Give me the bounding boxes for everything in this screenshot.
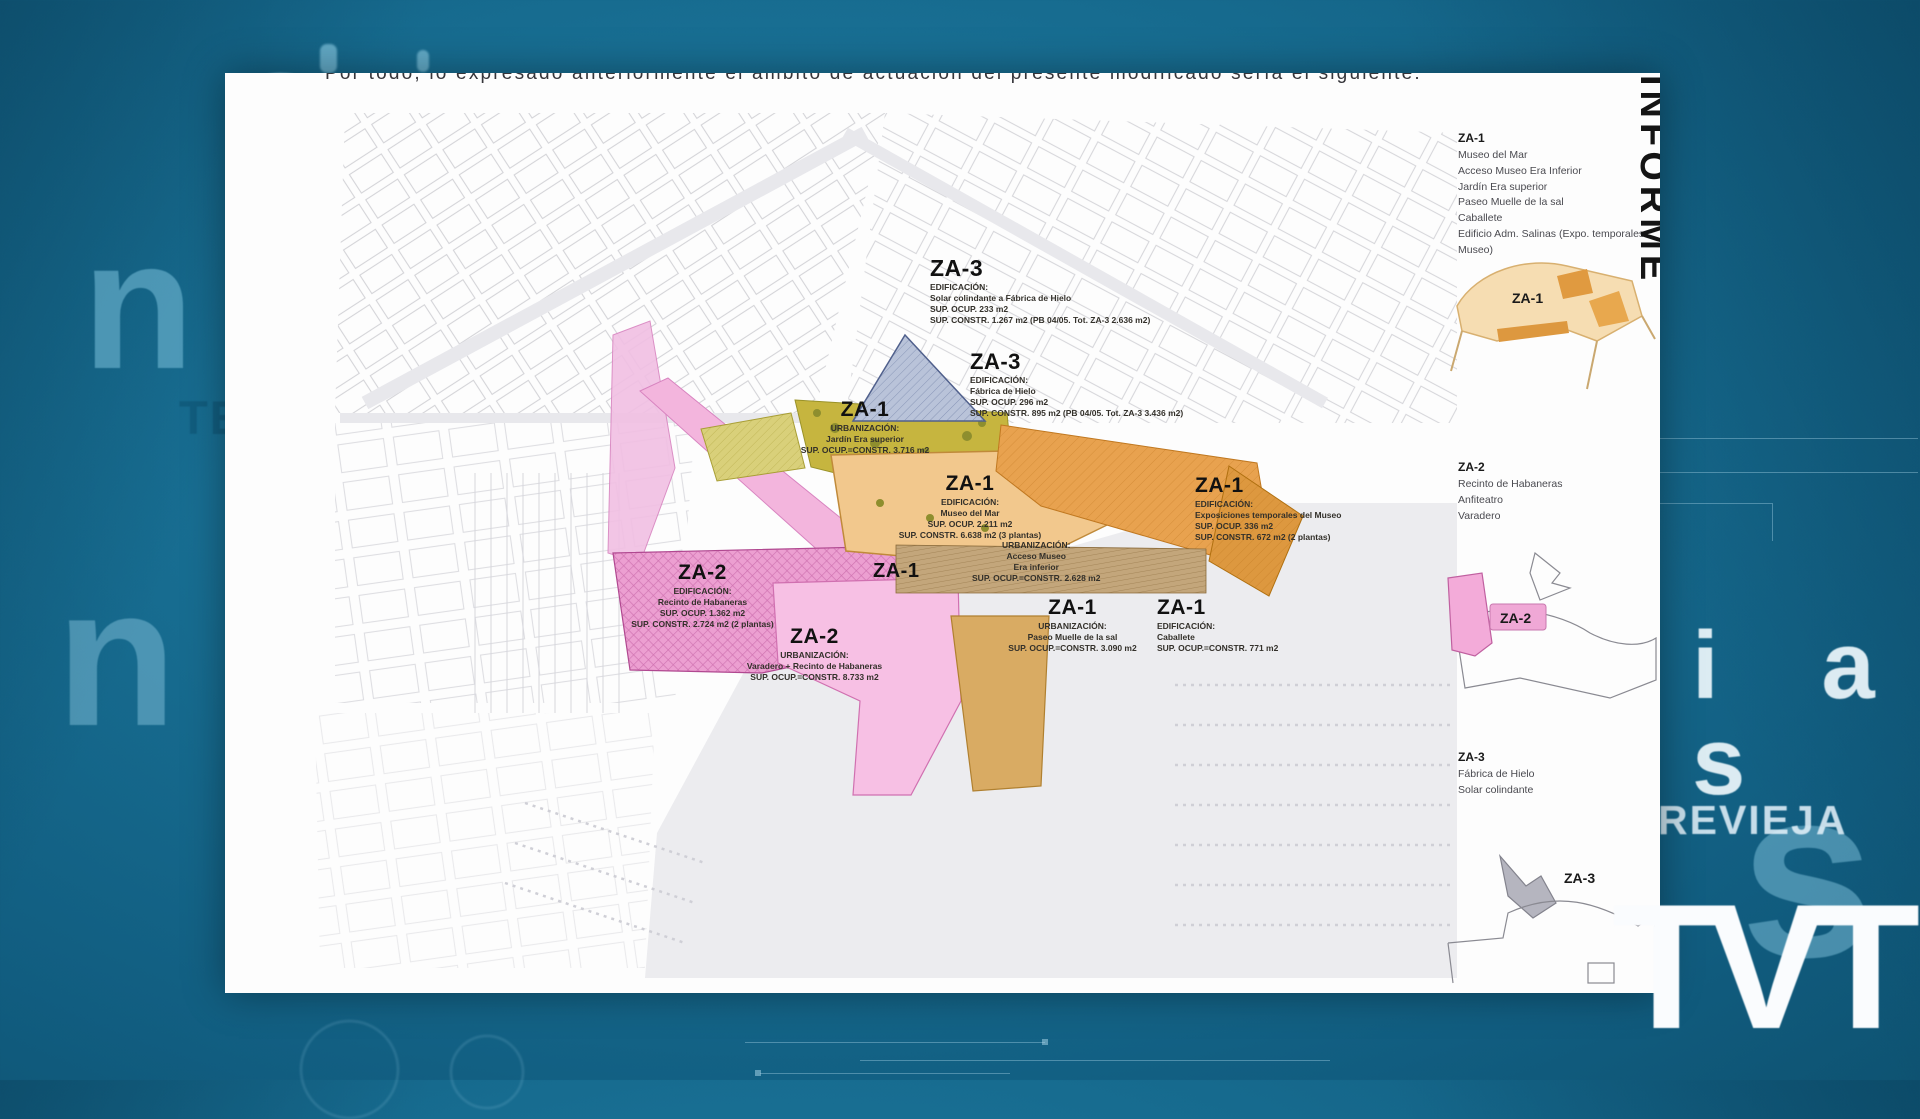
zone-block-za1-paseo: ZA-1 URBANIZACIÓN: Paseo Muelle de la sa… [970, 597, 1175, 654]
zone-title: ZA-1 [1195, 475, 1430, 497]
informe-vertical-label: INFORME [1634, 75, 1660, 395]
zone-block-za1-acceso: ZA-1 URBANIZACIÓN: Acceso Museo Era infe… [873, 540, 1143, 584]
zone-title: ZA-1 [873, 561, 919, 582]
zone-title: ZA-1 [1157, 597, 1337, 619]
clipped-letter-fragment [417, 50, 429, 72]
circuit-node [755, 1070, 761, 1076]
document-page: Por todo, lo expresado anteriormente el … [225, 73, 1660, 993]
circuit-line [1772, 503, 1773, 541]
circuit-line [760, 1073, 1010, 1074]
zone-title: ZA-3 [970, 350, 1270, 373]
zone-block-za1-expo: ZA-1 EDIFICACIÓN: Exposiciones temporale… [1195, 475, 1430, 543]
zone-block-za1-museo: ZA-1 EDIFICACIÓN: Museo del Mar SUP. OCU… [870, 473, 1070, 541]
zone-title: ZA-2 [707, 626, 922, 648]
circuit-line [860, 1060, 1330, 1061]
legend-za1-title: ZA-1 [1458, 131, 1658, 145]
zone-block-za2-recinto: ZA-2 EDIFICACIÓN: Recinto de Habaneras S… [600, 562, 805, 630]
ghost-letter-n-upper: n [82, 212, 194, 396]
za2-minimap: ZA-2 [1440, 528, 1660, 738]
za2-minimap-label: ZA-2 [1500, 610, 1531, 626]
ghost-letter-n-lower: n [56, 558, 177, 756]
circuit-node [1042, 1039, 1048, 1045]
zone-title: ZA-1 [970, 597, 1175, 619]
zone-block-za3-solar: ZA-3 EDIFICACIÓN: Solar colindante a Fáb… [930, 256, 1260, 326]
zone-block-za3-fabrica: ZA-3 EDIFICACIÓN: Fábrica de Hielo SUP. … [970, 350, 1270, 419]
legend-za2: ZA-2 Recinto de Habaneras Anfiteatro Var… [1458, 460, 1658, 524]
faint-letter-outline [450, 1035, 524, 1109]
faint-letter-outline [300, 1020, 399, 1119]
za3-minimap-label: ZA-3 [1564, 870, 1595, 886]
legend-za2-title: ZA-2 [1458, 460, 1658, 474]
tvt-logo: TVT [1612, 878, 1906, 1056]
zone-block-za2-varadero: ZA-2 URBANIZACIÓN: Varadero + Recinto de… [707, 626, 922, 683]
zone-title: ZA-1 [765, 399, 965, 421]
legend-za3-title: ZA-3 [1458, 750, 1658, 764]
zone-block-za1-caballete: ZA-1 EDIFICACIÓN: Caballete SUP. OCUP.=C… [1157, 597, 1337, 654]
za1-minimap: ZA-1 [1437, 221, 1660, 421]
zone-title: ZA-1 [870, 473, 1070, 495]
ghost-word-revieja: REVIEJA [1658, 800, 1847, 841]
zone-title: ZA-2 [600, 562, 805, 584]
zone-block-za1-jardin: ZA-1 URBANIZACIÓN: Jardín Era superior S… [765, 399, 965, 456]
za1-minimap-label: ZA-1 [1512, 290, 1543, 306]
zone-title: ZA-3 [930, 256, 1260, 280]
clipped-letter-fragment [320, 44, 337, 73]
circuit-line [745, 1042, 1045, 1043]
